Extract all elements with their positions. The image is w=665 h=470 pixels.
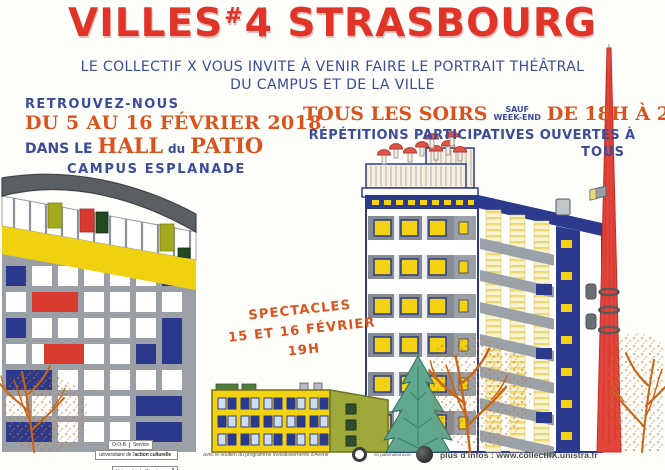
tous-les-soirs: TOUS LES SOIRS [303,103,487,125]
event-dates: DU 5 AU 16 FÉVRIER 2018 [25,112,322,134]
title-word-strasbourg: STRASBOURG [287,1,597,46]
event-poster: VILLES#4 STRASBOURG LE COLLECTIF X VOUS … [0,0,665,470]
hash-glyph: # [224,4,243,29]
sauf-weekend: SAUF WEEK-END [493,106,540,122]
venue-hall: HALL [98,133,164,158]
partner-logo-icon [416,446,433,463]
logo-row2: universitaire de l'action culturelle [95,450,178,460]
logo-row2-bold: action culturelle [134,452,171,458]
subtitle-line2: DU CAMPUS ET DE LA VILLE [0,76,665,94]
tous-line: TOUS [303,144,641,161]
title-word-villes: VILLES [68,1,223,46]
hours-label: DE 18H À 20H [547,103,665,125]
logo-service: Service [133,442,149,448]
schedule-block: TOUS LES SOIRS SAUF WEEK-END DE 18H À 20… [303,103,641,161]
logo-row1: O-O-BService [108,440,153,450]
venue-patio: PATIO [190,133,263,158]
retrouvez-nous-label: RETROUVEZ-NOUS [25,97,322,112]
subtitle-line1: LE COLLECTIF X VOUS INVITE À VENIR FAIRE… [0,58,665,76]
investissements-avenir-logo-icon [352,447,367,462]
logo-mark: O-O-B [112,442,130,448]
campus-label: CAMPUS ESPLANADE [67,161,322,179]
schedule-line1: TOUS LES SOIRS SAUF WEEK-END DE 18H À 20… [303,103,641,125]
repetitions-line: RÉPÉTITIONS PARTICIPATIVES OUVERTES À [303,127,641,144]
venue-du: du [168,142,185,156]
weekend-label: WEEK-END [493,113,540,122]
venue-pre: DANS LE [25,141,93,157]
poster-title: VILLES#4 STRASBOURG [0,1,665,46]
support-text: avec le soutien du programme Investissem… [203,452,328,458]
university-logo: O-O-BService universitaire de l'action c… [95,433,178,470]
venue-line: DANS LE HALL du PATIO [25,134,322,161]
venue-date-block: RETROUVEZ-NOUS DU 5 AU 16 FÉVRIER 2018 D… [25,97,322,179]
more-info-url: plus d'infos : www.collectifX.unistra.fr [440,450,598,460]
title-number: 4 [245,1,273,46]
logo-row3: Université de Strasbourg [112,466,178,470]
poster-subtitle: LE COLLECTIF X VOUS INVITE À VENIR FAIRE… [0,58,665,94]
logo-row2-pre: universitaire de l' [99,452,134,458]
yellow-building [212,383,388,452]
partnership-text: en partenariat avec [374,453,411,458]
